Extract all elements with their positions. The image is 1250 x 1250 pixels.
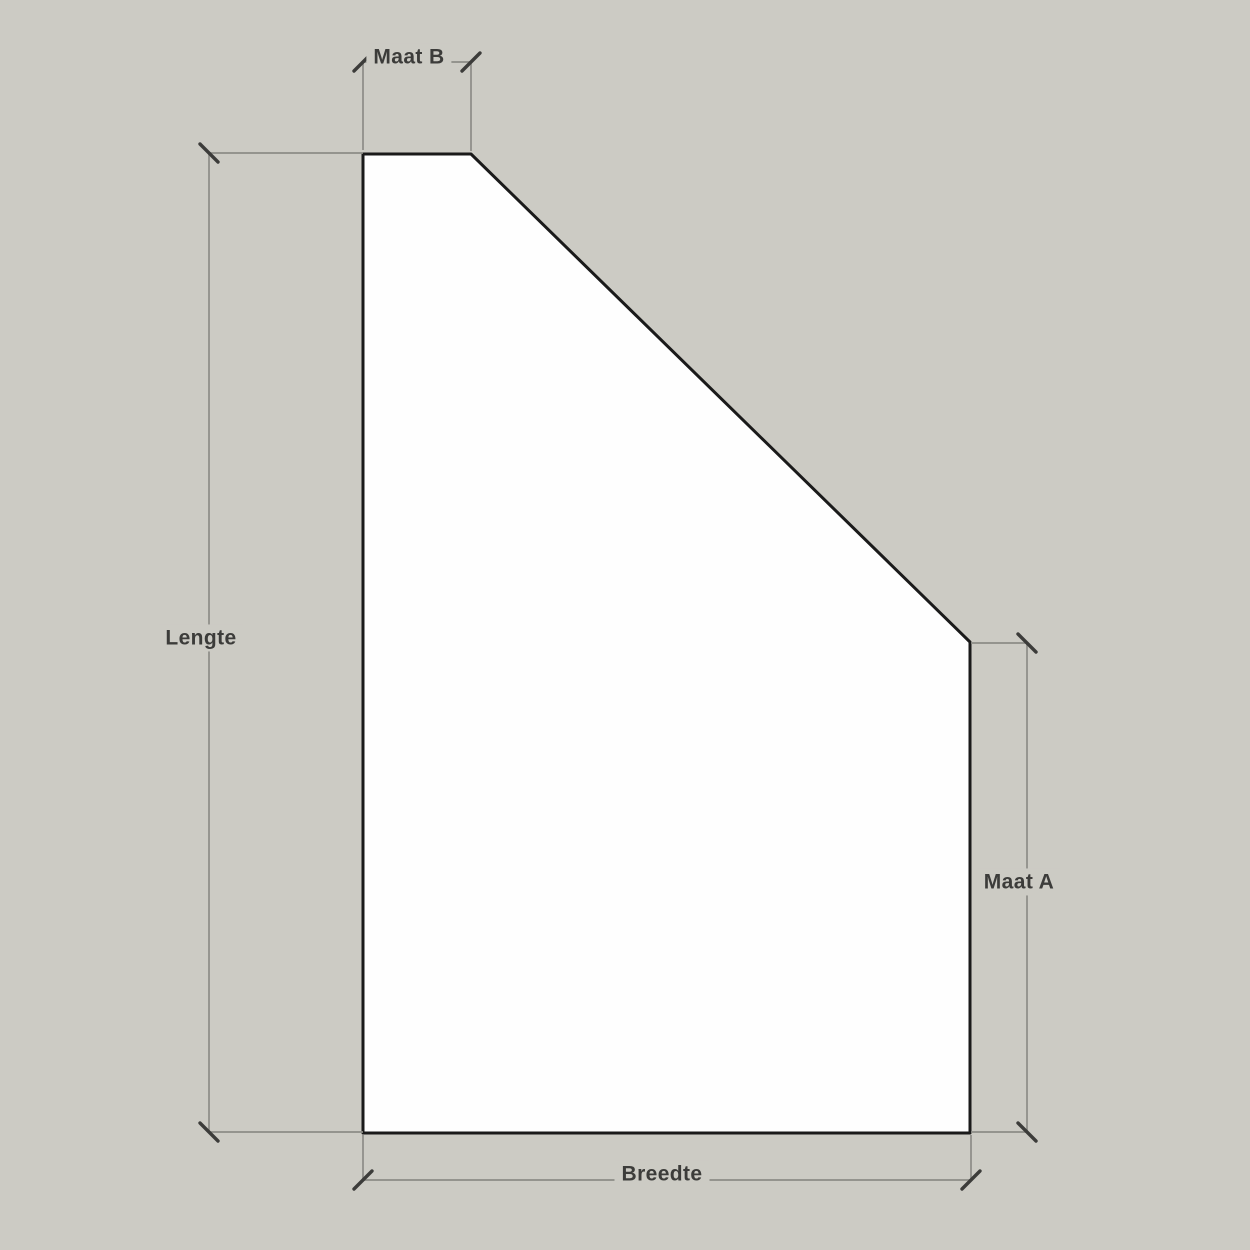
dim-label-breedte: Breedte bbox=[615, 1160, 710, 1187]
dimension-diagram: Maat B Lengte Maat A Breedte bbox=[0, 0, 1250, 1250]
dim-label-lengte: Lengte bbox=[158, 624, 243, 651]
dim-label-maat-a: Maat A bbox=[977, 868, 1061, 895]
dim-label-maat-b: Maat B bbox=[366, 43, 451, 70]
